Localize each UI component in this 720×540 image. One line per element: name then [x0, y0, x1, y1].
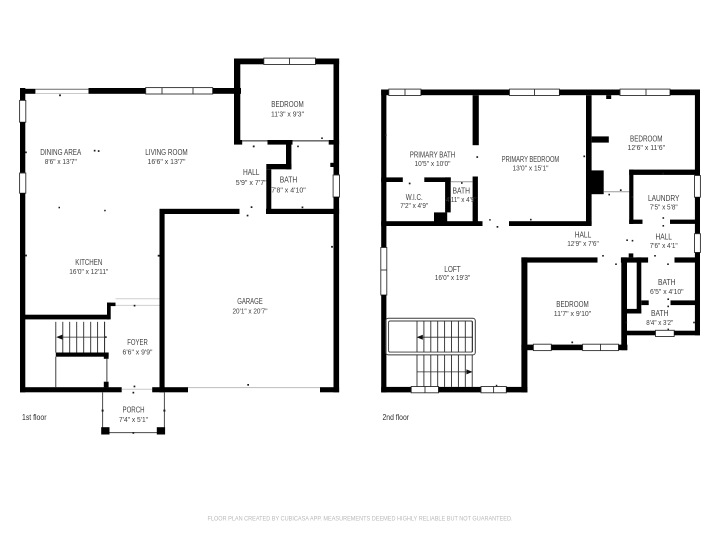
svg-text:4'11" x 4'9": 4'11" x 4'9" [446, 195, 477, 204]
svg-text:DINING AREA: DINING AREA [40, 148, 82, 157]
svg-text:10'5" x 10'0": 10'5" x 10'0" [415, 159, 451, 168]
svg-text:LIVING ROOM: LIVING ROOM [145, 148, 188, 157]
svg-text:BEDROOM: BEDROOM [271, 100, 304, 109]
svg-text:16'6" x 13'7": 16'6" x 13'7" [148, 157, 186, 166]
svg-text:FLOOR PLAN CREATED BY CUBICASA: FLOOR PLAN CREATED BY CUBICASA APP. MEAS… [208, 516, 513, 523]
svg-text:8'4" x 3'2": 8'4" x 3'2" [646, 318, 673, 327]
svg-text:7'6" x 4'1": 7'6" x 4'1" [650, 241, 678, 250]
svg-text:16'0" x 19'3": 16'0" x 19'3" [435, 273, 471, 282]
svg-text:HALL: HALL [243, 168, 260, 177]
svg-text:16'0" x 12'11": 16'0" x 12'11" [69, 267, 108, 276]
svg-text:KITCHEN: KITCHEN [75, 258, 102, 267]
svg-text:6'5" x 4'10": 6'5" x 4'10" [650, 287, 684, 296]
svg-text:11'7" x 9'10": 11'7" x 9'10" [554, 309, 592, 318]
svg-text:7'8" x 4'10": 7'8" x 4'10" [271, 186, 306, 195]
svg-text:1st floor: 1st floor [22, 412, 47, 422]
svg-text:7'4" x 5'1": 7'4" x 5'1" [119, 415, 148, 424]
svg-text:2nd floor: 2nd floor [383, 412, 410, 422]
svg-text:20'1" x 20'7": 20'1" x 20'7" [233, 306, 268, 315]
svg-text:FOYER: FOYER [127, 338, 148, 347]
svg-text:12'9" x 7'6": 12'9" x 7'6" [567, 239, 599, 248]
svg-text:GARAGE: GARAGE [237, 297, 263, 306]
svg-text:7'2" x 4'9": 7'2" x 4'9" [400, 201, 428, 210]
svg-text:5'9" x 7'7": 5'9" x 7'7" [236, 178, 267, 187]
svg-text:13'0" x 15'1": 13'0" x 15'1" [513, 163, 549, 172]
svg-text:11'3" x 9'3": 11'3" x 9'3" [271, 110, 304, 119]
svg-text:PORCH: PORCH [123, 405, 145, 414]
svg-text:6'6" x 9'9": 6'6" x 9'9" [123, 348, 153, 357]
svg-text:BATH: BATH [658, 278, 676, 287]
svg-text:BATH: BATH [651, 309, 669, 318]
svg-text:8'6" x 13'7": 8'6" x 13'7" [45, 157, 77, 166]
svg-text:12'6" x 11'6": 12'6" x 11'6" [628, 143, 666, 152]
svg-text:BATH: BATH [280, 176, 298, 185]
svg-text:BEDROOM: BEDROOM [556, 300, 589, 309]
svg-text:7'5" x 5'8": 7'5" x 5'8" [650, 203, 678, 212]
